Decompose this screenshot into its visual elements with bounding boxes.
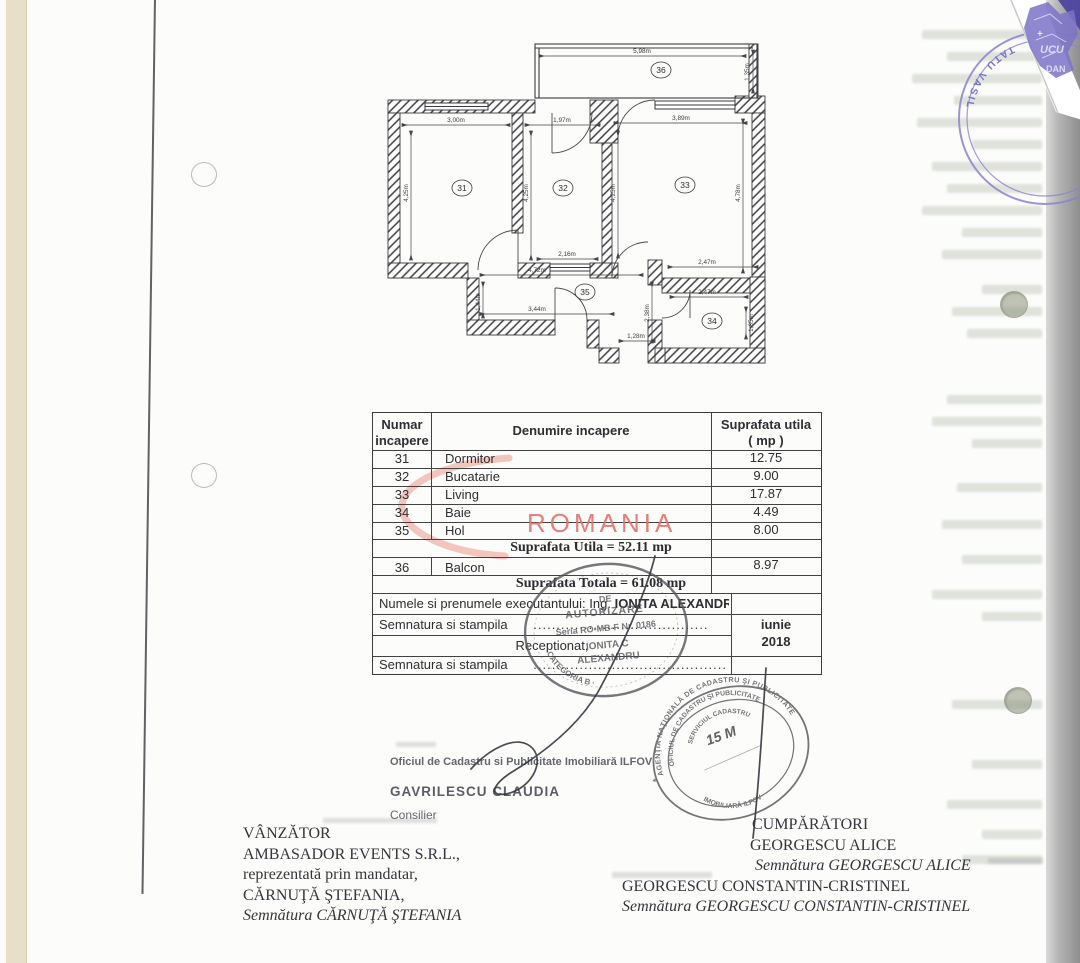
util-total: Suprafata Utila = 52.11 mp bbox=[461, 539, 721, 557]
svg-text:2,47m: 2,47m bbox=[698, 259, 716, 266]
buyers-heading: CUMPĂRĂTORI bbox=[752, 815, 1062, 836]
bleed-line bbox=[947, 52, 1042, 61]
seller-block: VÂNZĂTOR AMBASADOR EVENTS S.R.L., reprez… bbox=[243, 824, 461, 927]
svg-text:31: 31 bbox=[457, 183, 467, 193]
seller-name: CĂRNUŢĂ ŞTEFANIA, bbox=[243, 886, 461, 907]
smudge bbox=[396, 742, 436, 747]
svg-text:4,72m: 4,72m bbox=[528, 267, 546, 274]
room-name: Bucatarie bbox=[445, 468, 705, 486]
executant-name: IONITA ALEXANDRU bbox=[615, 596, 729, 611]
room-number: 32 bbox=[373, 468, 431, 486]
svg-text:32: 32 bbox=[558, 183, 568, 193]
svg-text:4,25m: 4,25m bbox=[403, 184, 410, 202]
scanned-document-page: { "page": { "watermark": "ROMANIA" }, "p… bbox=[0, 0, 1080, 963]
bleed-line bbox=[952, 700, 1042, 709]
official-name: GAVRILESCU CLAUDIA bbox=[390, 784, 560, 799]
seller-representative: reprezentată prin mandatar, bbox=[243, 865, 461, 886]
svg-text:4,25m: 4,25m bbox=[523, 184, 530, 202]
room-area: 12.75 bbox=[711, 449, 821, 467]
bleed-line bbox=[922, 30, 1042, 39]
svg-text:*: * bbox=[652, 776, 659, 787]
official-role: Consilier bbox=[390, 808, 437, 822]
svg-text:1,44m: 1,44m bbox=[475, 293, 482, 311]
scan-fold-line bbox=[141, 0, 156, 894]
bleed-line bbox=[982, 285, 1042, 294]
svg-text:1,28m: 1,28m bbox=[627, 333, 645, 340]
room-number: 33 bbox=[373, 486, 431, 504]
stamp-date: 15 M bbox=[704, 722, 739, 748]
bleed-line bbox=[982, 612, 1042, 621]
bleed-line bbox=[962, 228, 1042, 237]
dimension-labels: 5,98m 1,35m 3,00m 1,97m 3,89m 4,25m 4,25… bbox=[403, 48, 755, 340]
bleed-line bbox=[917, 118, 1042, 127]
svg-text:34: 34 bbox=[707, 316, 717, 326]
room-numbers: 31 32 33 34 35 36 bbox=[452, 62, 722, 329]
bleed-line bbox=[932, 417, 1042, 426]
received-row: Receptionat, bbox=[373, 635, 731, 656]
room-number: 31 bbox=[373, 450, 431, 468]
room-number: 34 bbox=[373, 504, 431, 522]
balcony-walls bbox=[535, 44, 757, 98]
door-arcs bbox=[478, 100, 690, 320]
bleed-line bbox=[912, 74, 1042, 83]
walls bbox=[388, 44, 765, 363]
buyer2-name: GEORGESCU CONSTANTIN-CRISTINEL bbox=[622, 877, 1062, 898]
buyer1-name: GEORGESCU ALICE bbox=[750, 836, 1062, 857]
buyer1-signature-line: Semnătura GEORGESCU ALICE bbox=[755, 856, 1062, 877]
dimension-lines bbox=[403, 51, 757, 342]
grand-total: Suprafata Totala = 61.08 mp bbox=[471, 574, 731, 593]
svg-text:1,85m: 1,85m bbox=[748, 314, 755, 332]
buyers-block: CUMPĂRĂTORI GEORGESCU ALICE Semnătura GE… bbox=[622, 815, 1062, 918]
svg-text:OFICIUL DE CADASTRU ŞI PUBLICI: OFICIUL DE CADASTRU ŞI PUBLICITATE bbox=[651, 678, 774, 768]
room-name: Dormitor bbox=[445, 450, 705, 468]
room-area: 8.97 bbox=[711, 556, 821, 574]
bleed-line bbox=[962, 555, 1042, 564]
executant-row: Numele si prenumele executantului: Ing. … bbox=[379, 593, 729, 614]
bleed-line bbox=[922, 206, 1042, 215]
punch-hole bbox=[191, 463, 217, 488]
header-denumire: Denumire incapere bbox=[431, 423, 711, 439]
bleed-line bbox=[947, 184, 1042, 193]
svg-text:2,47m: 2,47m bbox=[698, 289, 716, 296]
svg-text:35: 35 bbox=[580, 287, 590, 297]
bleed-line bbox=[972, 439, 1042, 448]
room-area: 4.49 bbox=[711, 503, 821, 521]
bleed-line bbox=[942, 250, 1042, 259]
room-number: 35 bbox=[373, 522, 431, 539]
floor-plan: 5,98m 1,35m 3,00m 1,97m 3,89m 4,25m 4,25… bbox=[385, 30, 775, 375]
bleed-line bbox=[954, 96, 1042, 105]
svg-text:36: 36 bbox=[656, 65, 666, 75]
svg-text:SERVICIUL CADASTRU: SERVICIUL CADASTRU bbox=[680, 699, 755, 746]
executant-label: Numele si prenumele executantului: Ing. bbox=[379, 596, 611, 611]
svg-text:1,35m: 1,35m bbox=[744, 63, 751, 81]
room-area: 8.00 bbox=[711, 521, 821, 538]
bleed-line bbox=[952, 307, 1042, 316]
punch-hole bbox=[191, 162, 217, 187]
header-numar: Numarincapere bbox=[373, 417, 431, 450]
bleed-line bbox=[932, 162, 1042, 171]
romania-watermark: ROMANIA bbox=[527, 508, 676, 539]
room-area: 17.87 bbox=[711, 485, 821, 503]
bleed-line bbox=[947, 800, 1042, 809]
header-suprafata: Suprafata utila( mp ) bbox=[711, 417, 821, 450]
ancpi-stamp: AGENŢIA NAŢIONALĂ DE CADASTRU ŞI PUBLICI… bbox=[626, 653, 827, 843]
cadastre-office-line: Oficiul de Cadastru si Publicitate Imobi… bbox=[390, 756, 730, 768]
svg-text:4,25m: 4,25m bbox=[610, 184, 617, 202]
svg-text:3,89m: 3,89m bbox=[672, 115, 690, 122]
page-left-edge bbox=[6, 0, 27, 963]
seller-heading: VÂNZĂTOR bbox=[243, 824, 461, 845]
svg-text:33: 33 bbox=[680, 180, 690, 190]
svg-text:2,38m: 2,38m bbox=[644, 304, 651, 322]
room-name: Living bbox=[445, 486, 705, 504]
bleed-line bbox=[967, 329, 1042, 338]
windows bbox=[425, 101, 735, 271]
svg-text:2,16m: 2,16m bbox=[558, 251, 576, 258]
svg-text:3,00m: 3,00m bbox=[447, 117, 465, 124]
svg-text:4,78m: 4,78m bbox=[735, 184, 742, 202]
signature-row-1: Semnatura si stampila ..................… bbox=[379, 614, 729, 635]
bleed-line bbox=[972, 140, 1042, 149]
bleed-line bbox=[957, 483, 1042, 492]
date-cell: iunie2018 bbox=[731, 616, 821, 650]
room-area: 9.00 bbox=[711, 467, 821, 485]
svg-text:5,98m: 5,98m bbox=[633, 48, 651, 55]
bleed-line bbox=[947, 395, 1042, 404]
room-number: 36 bbox=[373, 559, 431, 576]
bleed-line bbox=[942, 520, 1042, 529]
signature-row-2: Semnatura si stampila ..................… bbox=[379, 655, 729, 674]
seller-company: AMBASADOR EVENTS S.R.L., bbox=[243, 845, 461, 866]
bleed-line bbox=[932, 590, 1042, 599]
buyer2-signature-line: Semnătura GEORGESCU CONSTANTIN-CRISTINEL bbox=[622, 897, 1062, 918]
svg-text:3,44m: 3,44m bbox=[528, 306, 546, 313]
bleed-line bbox=[972, 760, 1042, 769]
area-table: Numarincapere Denumire incapere Suprafat… bbox=[372, 412, 822, 675]
svg-text:1,97m: 1,97m bbox=[553, 117, 571, 124]
seller-signature-line: Semnătura CĂRNUŢĂ ŞTEFANIA bbox=[243, 906, 461, 927]
